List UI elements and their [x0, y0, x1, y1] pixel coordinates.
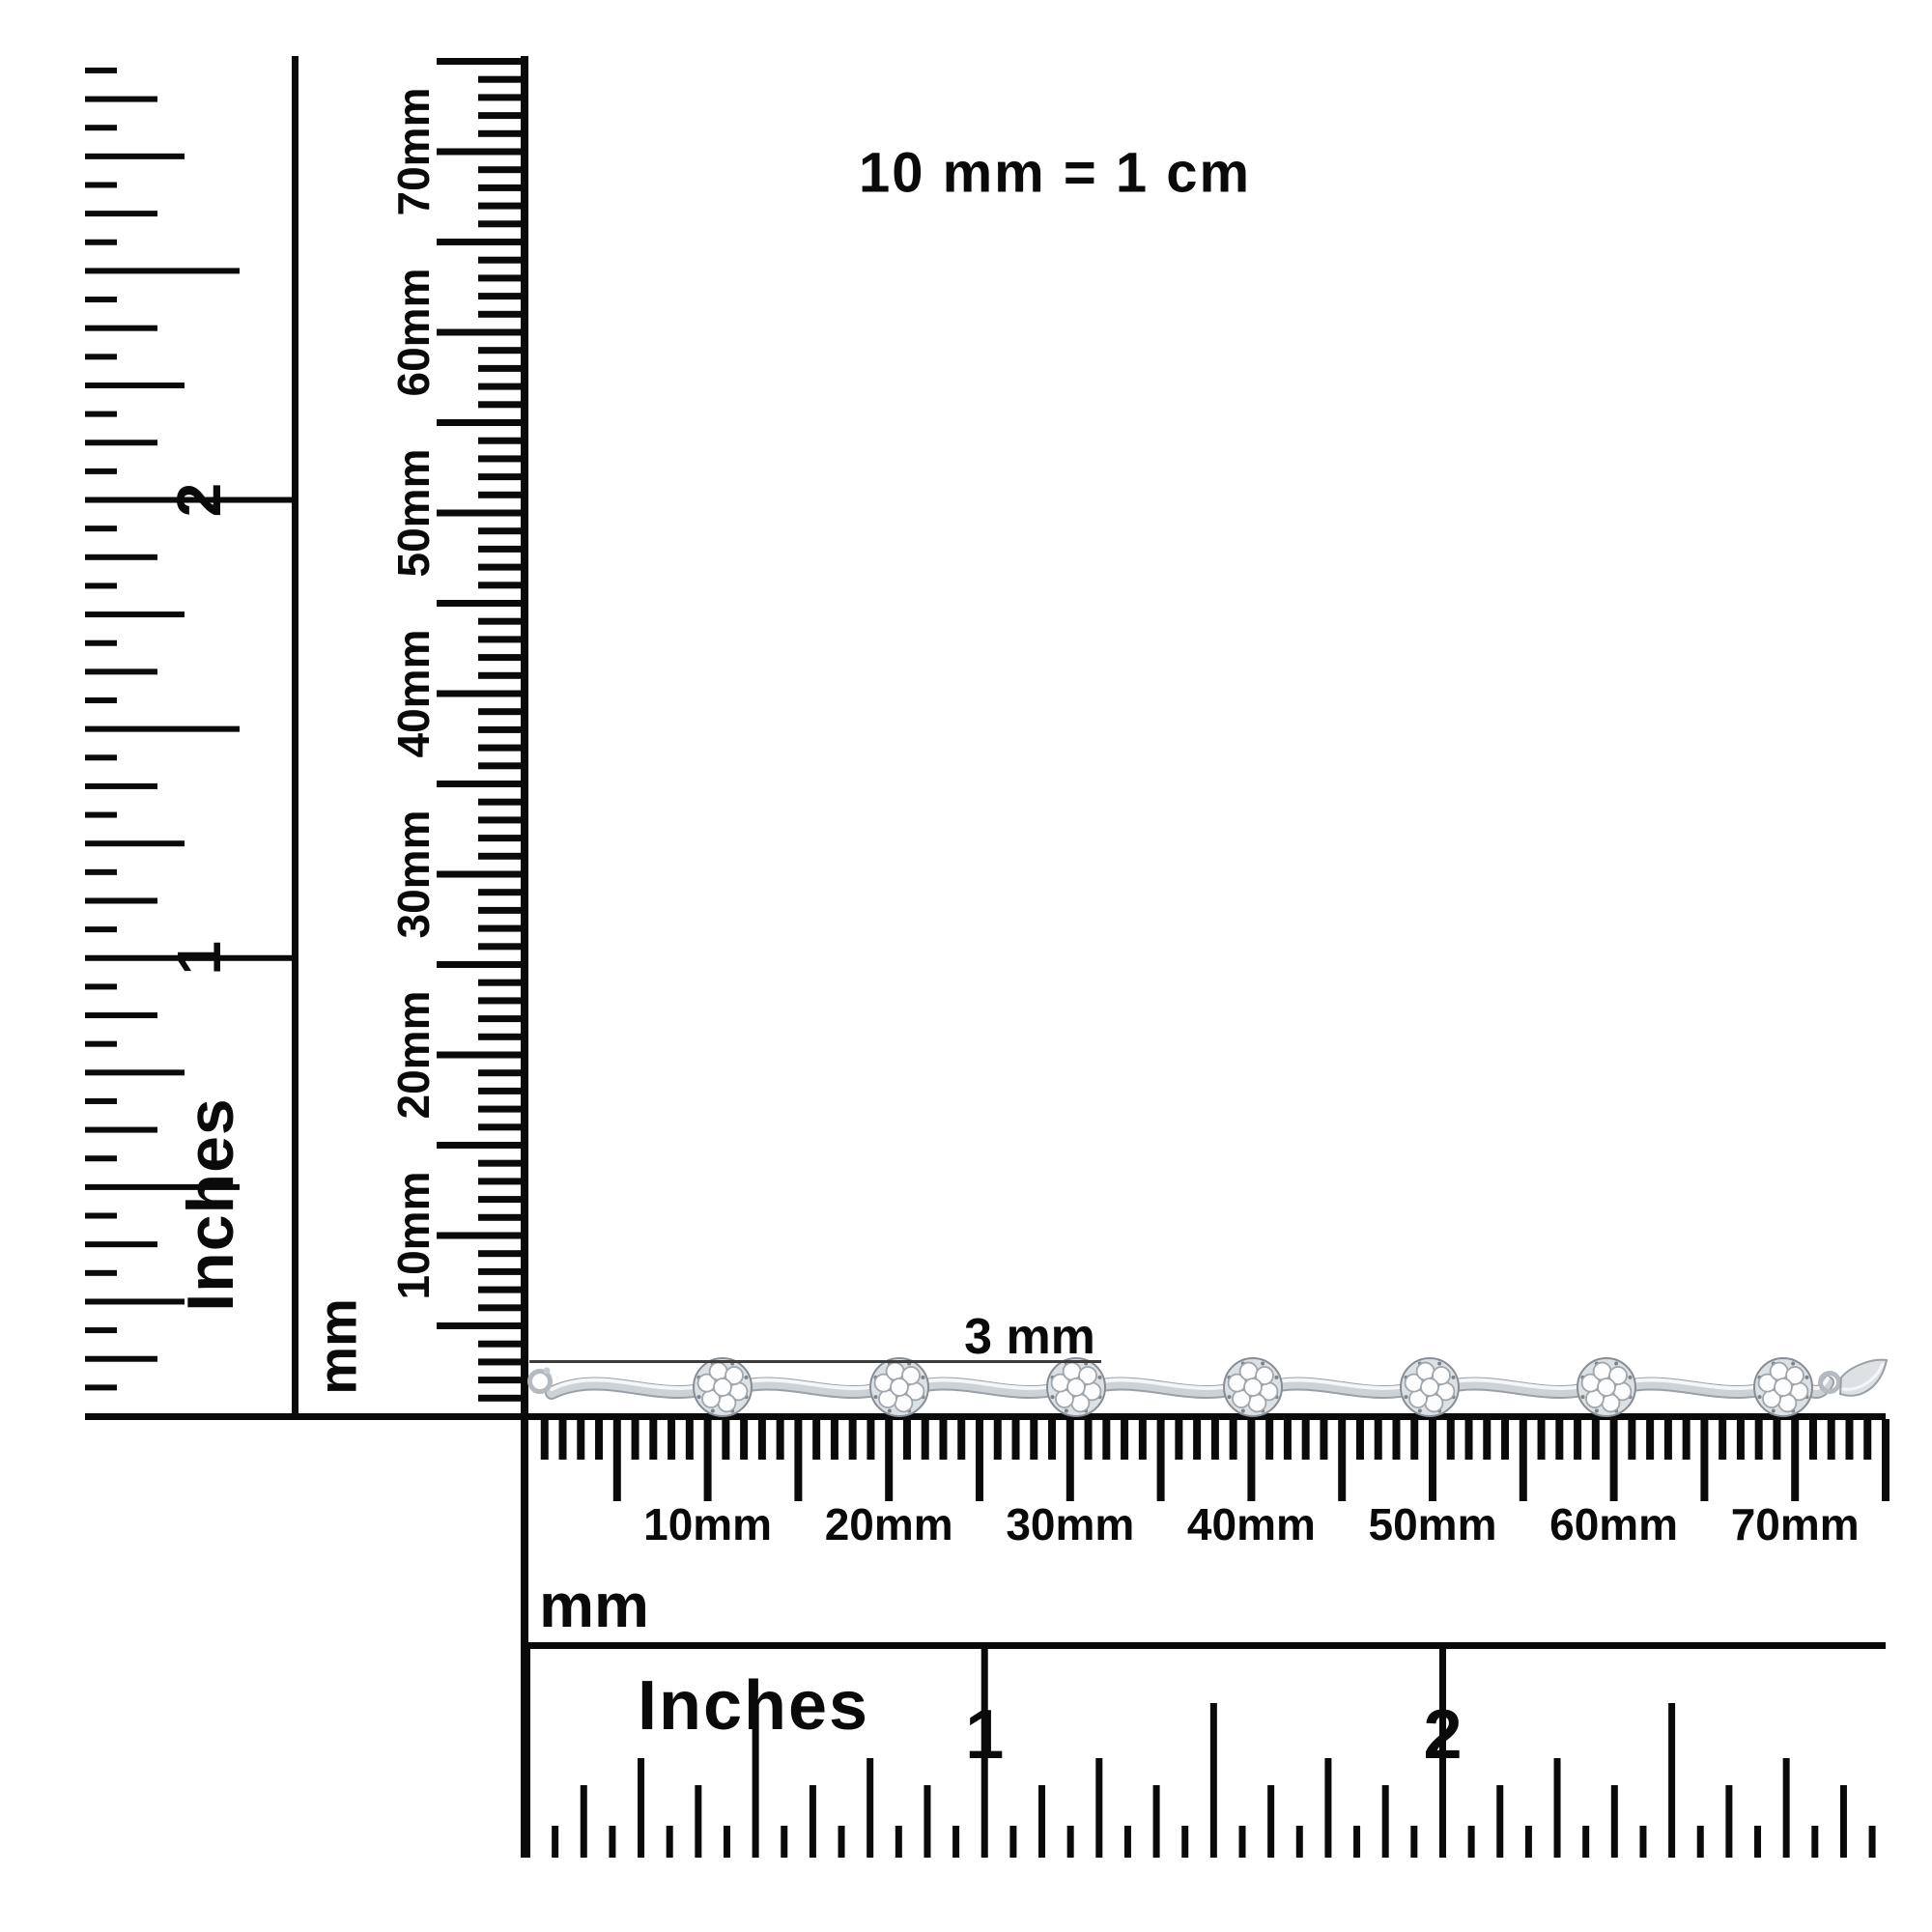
- mm-tick: [1483, 1419, 1491, 1460]
- mm-tick: [794, 1419, 802, 1501]
- inch-tick: [85, 354, 117, 359]
- prong-dot: [1451, 1376, 1455, 1379]
- inch-tick: [85, 1270, 117, 1276]
- mm-tick: [1157, 1419, 1165, 1501]
- mm-tick: [478, 293, 522, 299]
- inch-tick: [1811, 1826, 1818, 1858]
- inch-tick: [85, 897, 157, 903]
- inch-tick: [85, 754, 117, 760]
- mm-tick: [668, 1419, 675, 1460]
- mm-tick: [1230, 1419, 1237, 1460]
- inch-tick: [524, 1645, 530, 1858]
- inch-tick: [1840, 1785, 1847, 1858]
- center-stone: [1421, 1378, 1438, 1396]
- mm-tick: [704, 1419, 712, 1501]
- prong-dot: [1418, 1408, 1422, 1412]
- mm-tick: [478, 582, 522, 588]
- mm-tick: [478, 1287, 522, 1293]
- pave-stone: [1602, 1394, 1619, 1411]
- mm-tick: [541, 1419, 549, 1460]
- prong-dot: [1791, 1362, 1795, 1366]
- prong-dot: [1228, 1395, 1232, 1399]
- mm-tick: [867, 1419, 874, 1460]
- mm-tick: [478, 889, 522, 895]
- mm-tick: [437, 1142, 522, 1149]
- inch-tick: [1210, 1703, 1217, 1858]
- bottom-mm-label-70mm: 70mm: [1731, 1499, 1860, 1549]
- mm-tick: [478, 1268, 522, 1275]
- mm-tick: [1175, 1419, 1182, 1460]
- center-stone: [1598, 1378, 1615, 1396]
- inch-tick: [1783, 1758, 1790, 1858]
- inch-tick: [85, 326, 157, 331]
- prong-dot: [1065, 1408, 1068, 1412]
- inch-tick: [1296, 1826, 1303, 1858]
- left-inch-number-2: 2: [164, 483, 234, 518]
- left-mm-ruler-ticks: [437, 58, 522, 1402]
- inch-tick: [85, 1384, 117, 1390]
- center-stone: [1244, 1378, 1262, 1396]
- mm-tick: [478, 257, 522, 264]
- inch-tick: [1468, 1826, 1475, 1858]
- prong-dot: [1628, 1376, 1632, 1379]
- mm-tick: [722, 1419, 729, 1460]
- inch-tick: [638, 1758, 644, 1858]
- left-inch-ruler: 12 Inches: [85, 56, 298, 1416]
- inch-tick: [867, 1758, 873, 1858]
- prong-dot: [1241, 1408, 1245, 1412]
- inch-tick: [85, 582, 117, 588]
- mm-tick: [994, 1419, 1002, 1460]
- inch-tick: [85, 983, 117, 989]
- pave-stone: [1071, 1394, 1089, 1411]
- mm-tick: [1012, 1419, 1020, 1460]
- inch-tick: [85, 97, 157, 102]
- prong-dot: [711, 1408, 715, 1412]
- inch-tick: [1697, 1826, 1704, 1858]
- mm-tick: [478, 203, 522, 210]
- mm-tick: [1211, 1419, 1219, 1460]
- inch-tick: [895, 1826, 902, 1858]
- inch-tick: [85, 526, 117, 531]
- mm-tick: [885, 1419, 893, 1501]
- mm-tick: [1102, 1419, 1110, 1460]
- mm-tick: [437, 419, 522, 426]
- pave-stone: [1771, 1363, 1788, 1380]
- mm-tick: [478, 1123, 522, 1130]
- mm-tick: [1610, 1419, 1618, 1501]
- left-mm-ruler-labels: 10mm20mm30mm40mm50mm60mm70mm: [388, 88, 439, 1300]
- left-mm-ruler-edge-line: [521, 56, 528, 1858]
- mm-tick: [478, 1358, 522, 1365]
- mm-tick: [1646, 1419, 1654, 1460]
- mm-tick: [1737, 1419, 1745, 1460]
- mm-tick: [478, 365, 522, 372]
- mm-tick: [1066, 1419, 1074, 1501]
- prong-dot: [1274, 1376, 1278, 1379]
- mm-tick: [478, 925, 522, 932]
- mm-tick: [478, 1069, 522, 1076]
- inch-tick: [85, 840, 185, 846]
- mm-tick: [478, 907, 522, 914]
- mm-tick: [478, 1395, 522, 1402]
- bottom-inch-ruler: 12 Inches: [524, 1642, 1887, 1858]
- mm-tick: [1592, 1419, 1600, 1460]
- mm-tick: [478, 1196, 522, 1203]
- inch-tick: [1382, 1785, 1389, 1858]
- mm-tick: [595, 1419, 603, 1460]
- bottom-mm-label-40mm: 40mm: [1187, 1499, 1316, 1549]
- prong-dot: [1097, 1376, 1101, 1379]
- mm-tick: [478, 185, 522, 191]
- inch-tick: [85, 182, 117, 187]
- mm-tick: [1809, 1419, 1817, 1460]
- mm-tick: [976, 1419, 983, 1501]
- mm-tick: [478, 1088, 522, 1094]
- inch-tick: [1153, 1785, 1160, 1858]
- mm-tick: [831, 1419, 838, 1460]
- mm-tick: [478, 166, 522, 173]
- mm-tick: [478, 636, 522, 642]
- prong-dot: [744, 1376, 748, 1379]
- inch-tick: [1038, 1785, 1045, 1858]
- inch-tick: [1639, 1826, 1646, 1858]
- inch-tick: [695, 1785, 701, 1858]
- mm-tick: [478, 762, 522, 769]
- prong-dot: [1772, 1408, 1776, 1412]
- bottom-inch-unit-label: Inches: [638, 1667, 869, 1745]
- bottom-inch-ruler-top-line: [526, 1642, 1886, 1649]
- inch-tick: [85, 640, 117, 646]
- inch-tick: [85, 926, 117, 932]
- mm-tick: [1501, 1419, 1509, 1460]
- inch-tick: [85, 869, 117, 875]
- mm-tick: [1683, 1419, 1690, 1460]
- inch-tick: [724, 1826, 730, 1858]
- mm-tick: [478, 564, 522, 571]
- left-mm-label-40mm: 40mm: [388, 630, 439, 758]
- mm-tick: [649, 1419, 657, 1460]
- mm-tick: [478, 853, 522, 860]
- inch-tick: [1410, 1826, 1417, 1858]
- mm-tick: [740, 1419, 748, 1460]
- inch-tick: [1353, 1826, 1360, 1858]
- inch-tick: [85, 154, 185, 159]
- inch-tick: [85, 668, 157, 674]
- left-mm-label-60mm: 60mm: [388, 269, 439, 397]
- mm-tick: [1574, 1419, 1581, 1460]
- inch-tick: [85, 125, 117, 130]
- inch-tick: [1725, 1785, 1732, 1858]
- inch-tick: [1754, 1826, 1761, 1858]
- diamond-cluster-station: [1754, 1358, 1812, 1416]
- pave-stone: [1064, 1363, 1081, 1380]
- mm-tick: [1302, 1419, 1310, 1460]
- mm-tick: [849, 1419, 857, 1460]
- diamond-cluster-station: [694, 1358, 752, 1416]
- mm-tick: [1755, 1419, 1763, 1460]
- inch-tick: [85, 297, 117, 302]
- mm-tick: [812, 1419, 820, 1460]
- inch-tick: [1009, 1826, 1016, 1858]
- mm-tick: [478, 347, 522, 354]
- inch-tick: [1095, 1758, 1102, 1858]
- mm-tick: [1048, 1419, 1056, 1460]
- width-annotation-label: 3 mm: [964, 1309, 1095, 1365]
- pave-stone: [718, 1394, 735, 1411]
- center-stone: [1775, 1378, 1792, 1396]
- mm-tick: [1863, 1419, 1871, 1460]
- mm-tick: [437, 781, 522, 787]
- mm-tick: [1265, 1419, 1273, 1460]
- inch-tick: [85, 211, 157, 216]
- mm-tick: [478, 130, 522, 137]
- mm-tick: [478, 274, 522, 281]
- mm-tick: [478, 745, 522, 752]
- inch-tick: [85, 1069, 185, 1075]
- mm-tick: [478, 708, 522, 715]
- inch-tick: [1668, 1703, 1675, 1858]
- inch-tick: [85, 440, 157, 445]
- mm-tick: [478, 1015, 522, 1022]
- mm-tick: [1773, 1419, 1780, 1460]
- mm-tick: [478, 1178, 522, 1184]
- pave-stone: [895, 1394, 912, 1411]
- mm-tick: [478, 1106, 522, 1113]
- mm-tick: [437, 961, 522, 968]
- center-stone: [891, 1378, 908, 1396]
- mm-tick: [478, 816, 522, 823]
- mm-tick: [478, 799, 522, 806]
- mm-tick: [478, 1304, 522, 1311]
- inch-tick: [1869, 1826, 1876, 1858]
- mm-tick: [478, 835, 522, 841]
- left-inch-ruler-edge-line: [292, 56, 298, 1416]
- pave-stone: [710, 1363, 727, 1380]
- mm-tick: [437, 58, 522, 65]
- mm-tick: [478, 220, 522, 227]
- mm-tick: [478, 997, 522, 1004]
- mm-tick: [478, 726, 522, 733]
- measurement-canvas: 10 mm = 1 cm 12 Inches 10mm20mm30mm40mm5…: [0, 0, 1932, 1932]
- inch-tick: [923, 1785, 930, 1858]
- mm-tick: [437, 239, 522, 245]
- prong-dot: [1758, 1395, 1762, 1399]
- mm-tick: [478, 1034, 522, 1040]
- mm-tick: [478, 1377, 522, 1383]
- scale-note: 10 mm = 1 cm: [859, 142, 1251, 205]
- bottom-mm-label-60mm: 60mm: [1549, 1499, 1678, 1549]
- mm-tick: [1121, 1419, 1128, 1460]
- inch-tick: [1554, 1758, 1561, 1858]
- mm-tick: [437, 149, 522, 156]
- mm-tick: [478, 980, 522, 986]
- mm-tick: [939, 1419, 947, 1460]
- inch-tick: [85, 783, 157, 789]
- mm-tick: [478, 1341, 522, 1348]
- mm-tick: [1193, 1419, 1201, 1460]
- mm-tick: [478, 384, 522, 390]
- prong-dot: [1614, 1362, 1618, 1366]
- mm-tick: [777, 1419, 784, 1460]
- mm-tick: [437, 1233, 522, 1239]
- mm-tick: [478, 943, 522, 950]
- inch-tick: [952, 1826, 959, 1858]
- inch-tick: [581, 1785, 587, 1858]
- mm-tick: [1628, 1419, 1635, 1460]
- inch-tick: [552, 1826, 558, 1858]
- mm-tick: [559, 1419, 567, 1460]
- mm-tick: [437, 871, 522, 878]
- mm-tick: [903, 1419, 911, 1460]
- mm-tick: [478, 438, 522, 444]
- inch-tick: [1239, 1826, 1246, 1858]
- mm-tick: [437, 600, 522, 607]
- prong-dot: [888, 1408, 892, 1412]
- diamond-cluster-station: [1047, 1358, 1105, 1416]
- mm-tick: [478, 618, 522, 625]
- inch-tick: [1496, 1785, 1503, 1858]
- mm-tick: [1828, 1419, 1835, 1460]
- inch-tick: [1124, 1826, 1131, 1858]
- mm-tick: [437, 510, 522, 517]
- mm-tick: [1538, 1419, 1546, 1460]
- mm-tick: [1085, 1419, 1093, 1460]
- mm-tick: [437, 1052, 522, 1059]
- mm-tick: [478, 1250, 522, 1257]
- mm-tick: [758, 1419, 766, 1460]
- width-annotation: 3 mm: [529, 1309, 1101, 1365]
- inch-tick: [1181, 1826, 1188, 1858]
- mm-tick: [1429, 1419, 1436, 1501]
- inch-tick: [85, 1155, 117, 1161]
- mm-tick: [1247, 1419, 1255, 1501]
- mm-tick: [478, 112, 522, 119]
- inch-tick: [838, 1826, 845, 1858]
- mm-tick: [613, 1419, 621, 1501]
- mm-tick: [957, 1419, 965, 1460]
- bottom-mm-unit-label: mm: [539, 1571, 649, 1640]
- mm-tick: [1392, 1419, 1400, 1460]
- prong-dot: [1261, 1362, 1264, 1366]
- left-inch-number-1: 1: [164, 941, 234, 976]
- bottom-mm-label-50mm: 50mm: [1369, 1499, 1497, 1549]
- mm-tick: [1465, 1419, 1473, 1460]
- mm-tick: [1356, 1419, 1364, 1460]
- inch-tick: [1067, 1826, 1074, 1858]
- mm-tick: [686, 1419, 694, 1460]
- mm-tick: [478, 546, 522, 553]
- width-annotation-line: [529, 1360, 1101, 1363]
- inch-tick: [810, 1785, 816, 1858]
- mm-tick: [478, 401, 522, 408]
- mm-tick: [1030, 1419, 1037, 1460]
- bottom-mm-ruler-labels: 10mm20mm30mm40mm50mm60mm70mm: [643, 1499, 1860, 1549]
- inch-tick: [85, 554, 157, 560]
- bottom-mm-label-30mm: 30mm: [1006, 1499, 1134, 1549]
- mm-tick: [478, 654, 522, 661]
- inch-tick: [85, 812, 117, 818]
- spring-ring-clasp: [530, 1372, 551, 1392]
- center-stone: [714, 1378, 731, 1396]
- left-mm-ruler: 10mm20mm30mm40mm50mm60mm70mm mm: [307, 56, 529, 1858]
- mm-tick: [478, 1160, 522, 1167]
- inch-tick: [85, 1241, 157, 1247]
- inch-tick: [85, 697, 117, 703]
- mm-tick: [1791, 1419, 1799, 1501]
- inch-tick: [85, 726, 240, 732]
- mm-tick: [1664, 1419, 1672, 1460]
- inch-tick: [85, 383, 185, 388]
- mm-tick: [1845, 1419, 1853, 1460]
- inch-tick: [85, 1213, 117, 1219]
- inch-tick: [85, 268, 240, 273]
- mm-tick: [922, 1419, 929, 1460]
- inch-tick: [85, 68, 117, 73]
- prong-dot: [1405, 1395, 1408, 1399]
- bottom-mm-ruler: 10mm20mm30mm40mm50mm60mm70mm mm: [539, 1419, 1889, 1640]
- inch-tick: [85, 611, 185, 617]
- mm-tick: [1410, 1419, 1418, 1460]
- mm-tick: [1719, 1419, 1726, 1460]
- mm-tick: [1520, 1419, 1527, 1501]
- inch-tick: [609, 1826, 615, 1858]
- pave-stone: [1425, 1394, 1442, 1411]
- left-mm-label-50mm: 50mm: [388, 449, 439, 578]
- inch-tick: [85, 1041, 117, 1047]
- mm-tick: [478, 492, 522, 498]
- mm-tick: [1447, 1419, 1455, 1460]
- clasp-knob: [544, 1368, 551, 1375]
- inch-tick: [85, 1327, 117, 1333]
- inch-tick: [1324, 1758, 1331, 1858]
- center-stone: [1067, 1378, 1085, 1396]
- inch-tick: [667, 1826, 673, 1858]
- inch-tick: [85, 469, 117, 474]
- left-inch-unit-label: Inches: [174, 1097, 247, 1311]
- pave-stone: [1248, 1394, 1265, 1411]
- mm-tick: [1284, 1419, 1292, 1460]
- bottom-inch-number-2: 2: [1423, 1696, 1462, 1774]
- inch-tick: [1582, 1826, 1589, 1858]
- inch-tick: [85, 1356, 157, 1362]
- mm-tick: [478, 94, 522, 100]
- left-mm-label-30mm: 30mm: [388, 810, 439, 939]
- pave-stone: [1240, 1363, 1258, 1380]
- mm-tick: [478, 1214, 522, 1221]
- prong-dot: [921, 1376, 924, 1379]
- mm-tick: [437, 691, 522, 697]
- left-mm-unit-label: mm: [307, 1298, 368, 1395]
- prong-dot: [697, 1395, 701, 1399]
- diamond-cluster-station: [1577, 1358, 1635, 1416]
- mm-tick: [437, 1322, 522, 1329]
- mm-tick: [632, 1419, 639, 1460]
- inch-tick: [85, 1098, 117, 1104]
- bottom-mm-ruler-ticks: [541, 1419, 1889, 1501]
- mm-tick: [478, 473, 522, 480]
- prong-dot: [1051, 1395, 1055, 1399]
- prong-dot: [874, 1395, 878, 1399]
- inch-tick: [85, 412, 117, 417]
- inch-tick: [85, 1127, 157, 1133]
- diamond-cluster-station: [1224, 1358, 1282, 1416]
- left-mm-label-10mm: 10mm: [388, 1172, 439, 1300]
- measurement-diagram: 10 mm = 1 cm 12 Inches 10mm20mm30mm40mm5…: [0, 0, 1932, 1932]
- mm-tick: [478, 527, 522, 534]
- mm-tick: [478, 76, 522, 83]
- mm-tick: [1882, 1419, 1889, 1501]
